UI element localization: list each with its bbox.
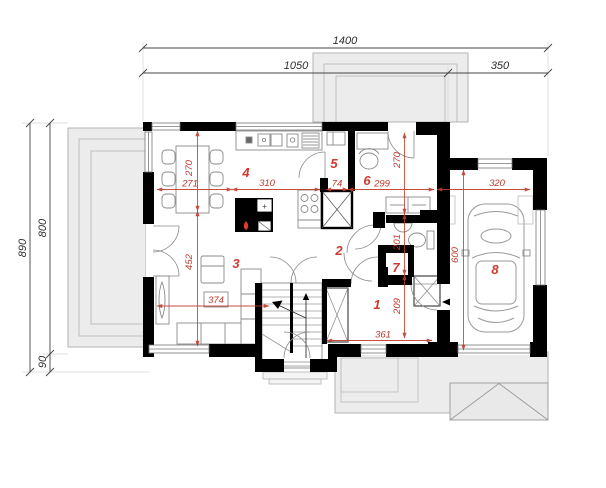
- floor-plan-drawing: +: [0, 0, 606, 488]
- fireplace-plus-label: +: [262, 202, 267, 211]
- stair-stringer: [290, 283, 293, 353]
- dim-kitchen-width: 310: [259, 178, 276, 189]
- room-6-label: 6: [363, 173, 371, 188]
- dim-house-width: 1050: [284, 60, 309, 72]
- dim-pantry-width: 74: [332, 179, 343, 190]
- dim-dining-width: 271: [181, 179, 198, 190]
- burner-icon: [311, 195, 318, 202]
- sofa-horizontal: [177, 323, 250, 344]
- room-2-label: 2: [334, 243, 343, 258]
- burner-icon: [301, 206, 308, 213]
- burner-icon: [301, 195, 308, 202]
- sink-drain-icon: [262, 138, 265, 141]
- floor-plan-page: +: [0, 0, 606, 488]
- fireplace: +: [235, 198, 273, 232]
- dim-garage-depth: 600: [450, 246, 461, 263]
- window-dining-top: [152, 123, 180, 130]
- room-1-label: 1: [373, 297, 380, 312]
- dim-house-depth: 800: [37, 218, 49, 237]
- hip-roof-outline: [450, 383, 548, 420]
- dim-office-depth: 270: [392, 151, 403, 169]
- dining-chair: [162, 172, 175, 186]
- dish-rack: [302, 133, 319, 148]
- room-4-label: 4: [241, 165, 250, 180]
- dim-living-width: 374: [208, 295, 224, 306]
- window-room1-bottom: [361, 345, 386, 353]
- toilet-bowl: [409, 233, 426, 247]
- window-garage-top: [478, 159, 512, 168]
- roof-overhang-top: [313, 53, 468, 122]
- dining-chair: [162, 194, 175, 208]
- armchair: [201, 256, 224, 283]
- dim-dining-depth: 270: [184, 159, 195, 177]
- window-dining-left: [145, 132, 152, 172]
- window-garage-right: [536, 210, 545, 285]
- stove: [298, 190, 321, 228]
- dim-hall-depth: 209: [392, 297, 403, 315]
- desk: [357, 133, 388, 149]
- kitchen-counter: [236, 131, 322, 150]
- toilet-tank: [427, 231, 434, 249]
- room-8-label: 8: [491, 262, 499, 277]
- dim-living-depth: 452: [184, 253, 195, 270]
- dining-chair: [210, 172, 223, 186]
- pantry-shelf: [327, 132, 345, 145]
- dim-garage-width: 320: [489, 178, 506, 189]
- porch-steps: [263, 372, 327, 384]
- garage-door-band: [458, 345, 530, 353]
- dim-total-depth: 890: [17, 238, 29, 257]
- dim-hall-width: 361: [375, 330, 391, 341]
- kitchen-sink: [271, 134, 282, 146]
- desk-chair: [360, 153, 378, 169]
- staircase: [262, 283, 322, 368]
- faucet-icon: [246, 137, 252, 143]
- room-5-label: 5: [330, 156, 338, 171]
- dim-wc-depth: 201: [392, 234, 403, 251]
- dining-chair: [162, 150, 175, 164]
- tv-icon: [159, 282, 165, 318]
- terrace-left: [68, 128, 146, 347]
- dining-chair: [210, 150, 223, 164]
- room-7-label: 7: [392, 260, 400, 275]
- window-living-bottom: [149, 345, 209, 353]
- dim-garage-outer-width: 350: [491, 60, 510, 72]
- dim-office-width: 299: [373, 179, 391, 190]
- window-kitchen-top: [236, 123, 322, 130]
- room-3-label: 3: [232, 256, 240, 271]
- burner-icon: [311, 206, 318, 213]
- dim-total-width: 1400: [333, 35, 358, 47]
- dining-chair: [210, 194, 223, 208]
- dim-porch-depth: 90: [37, 355, 49, 368]
